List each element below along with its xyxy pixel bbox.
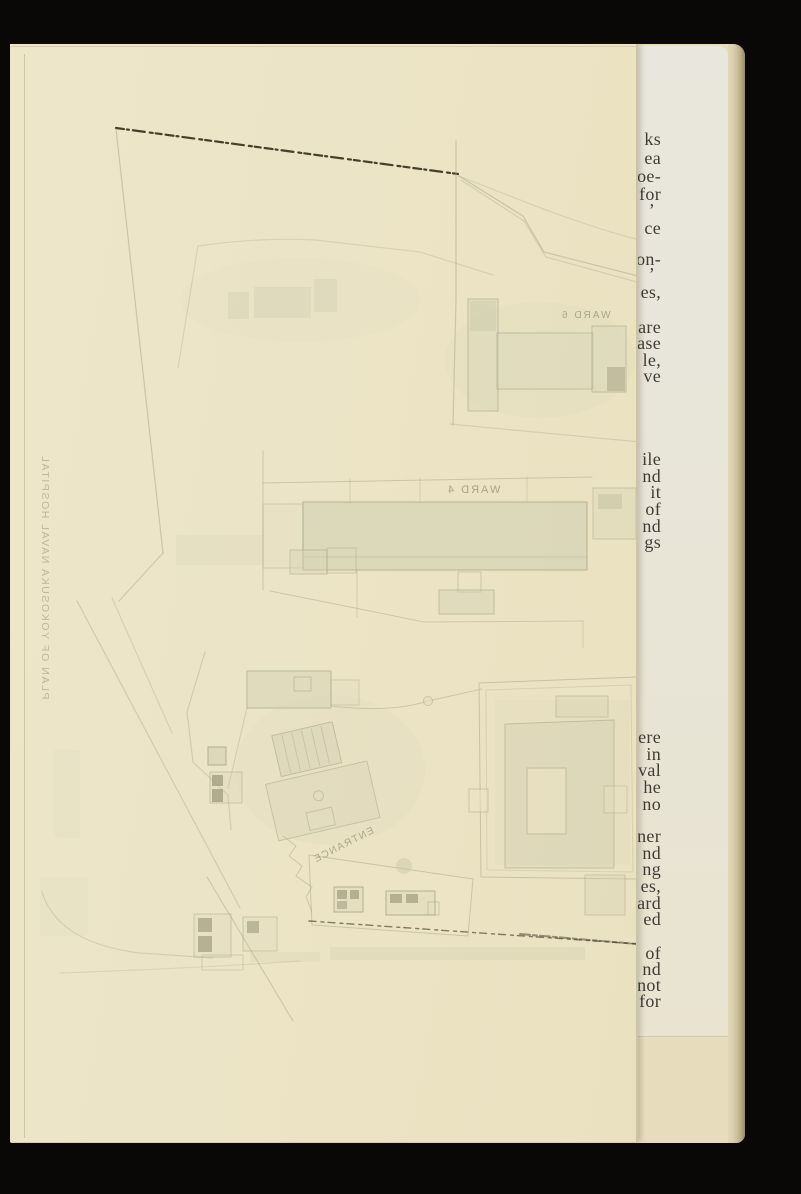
page-stack-edges [728, 44, 745, 1143]
ward6-label: WARD 6 [560, 310, 611, 321]
plan-side-caption: PLAN OF YOKOSUKA NAVAL HOSPITAL [39, 454, 51, 699]
ward4-building [263, 451, 636, 648]
ward4-label: WARD 4 [446, 484, 500, 496]
foldout-map-sheet: WARD 6 WARD 4 ENTRANCE PLAN OF YOKOSUKA … [10, 44, 638, 1142]
site-plan-drawing [10, 44, 636, 1142]
boundary-dashed-line [116, 128, 458, 174]
